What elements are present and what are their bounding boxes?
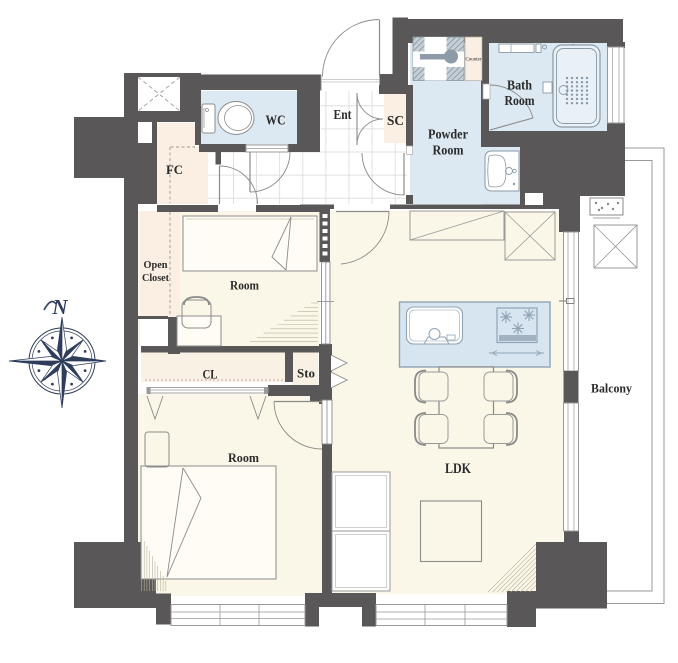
svg-text:LDK: LDK <box>445 461 472 477</box>
svg-text:Powder: Powder <box>428 128 468 143</box>
svg-text:Room: Room <box>228 450 259 465</box>
svg-text:FC: FC <box>166 162 183 177</box>
svg-text:WC: WC <box>266 114 286 129</box>
svg-text:Balcony: Balcony <box>591 382 633 396</box>
svg-text:Sto: Sto <box>297 367 315 381</box>
svg-text:N: N <box>51 295 68 319</box>
svg-text:CL: CL <box>203 367 218 382</box>
svg-text:Bath: Bath <box>507 78 532 93</box>
svg-text:Counter: Counter <box>466 57 482 63</box>
svg-text:Open: Open <box>144 259 168 271</box>
svg-text:Ent: Ent <box>334 108 352 123</box>
svg-text:Room: Room <box>230 278 259 293</box>
svg-text:Room: Room <box>505 93 536 108</box>
svg-text:Closet: Closet <box>142 272 169 284</box>
svg-text:Room: Room <box>433 144 464 159</box>
svg-text:SC: SC <box>387 114 404 129</box>
